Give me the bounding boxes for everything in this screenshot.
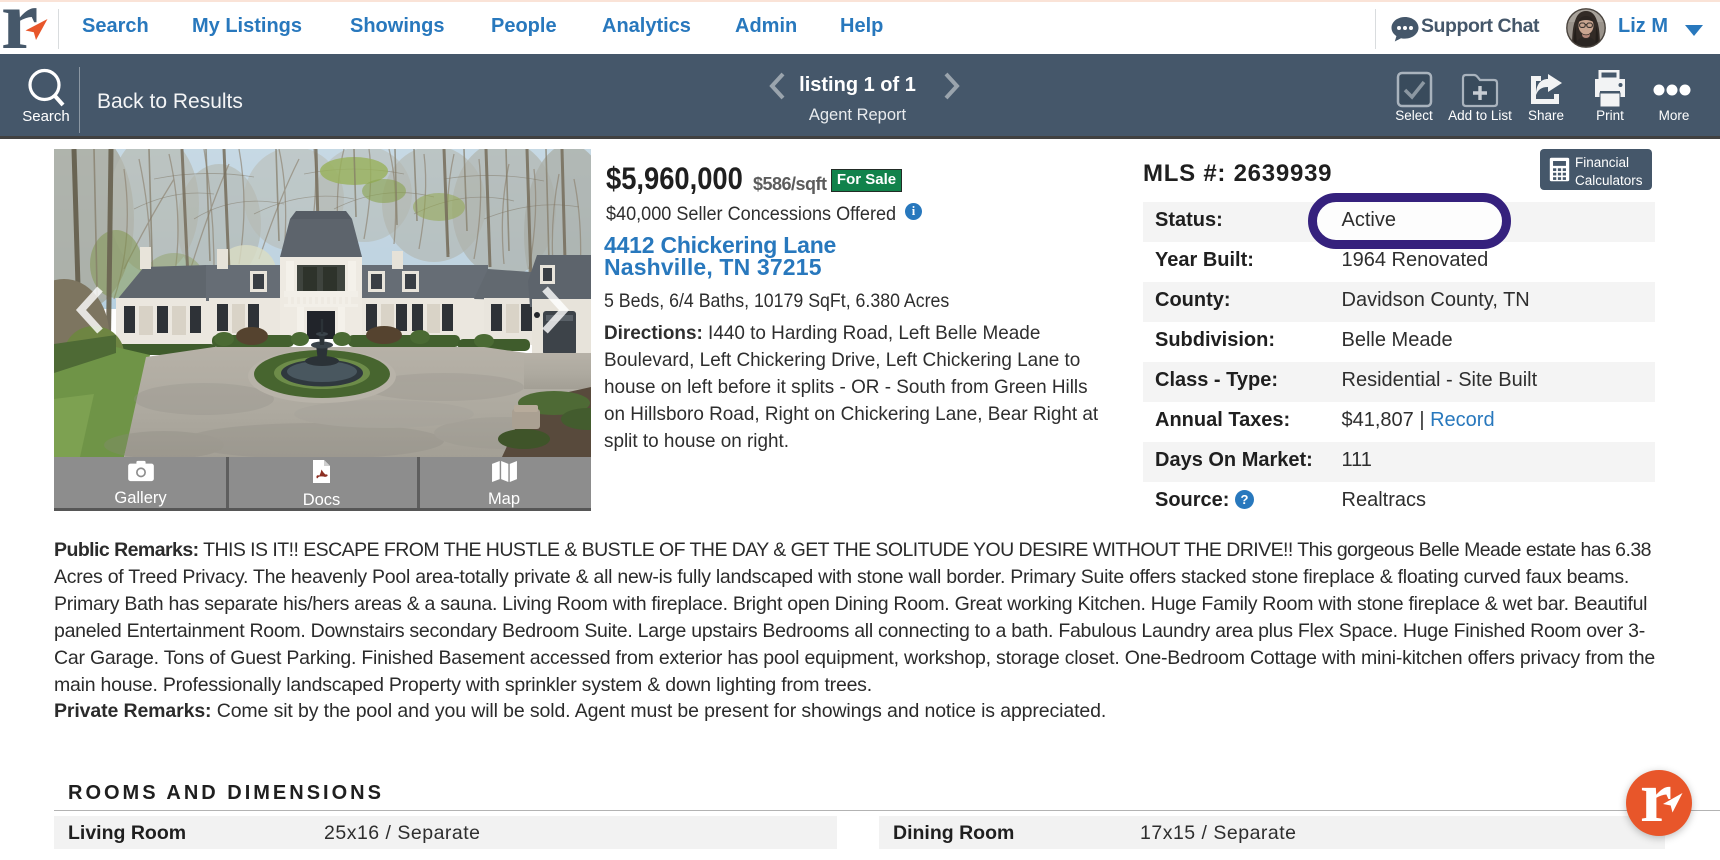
svg-text:Search: Search [22,108,70,124]
